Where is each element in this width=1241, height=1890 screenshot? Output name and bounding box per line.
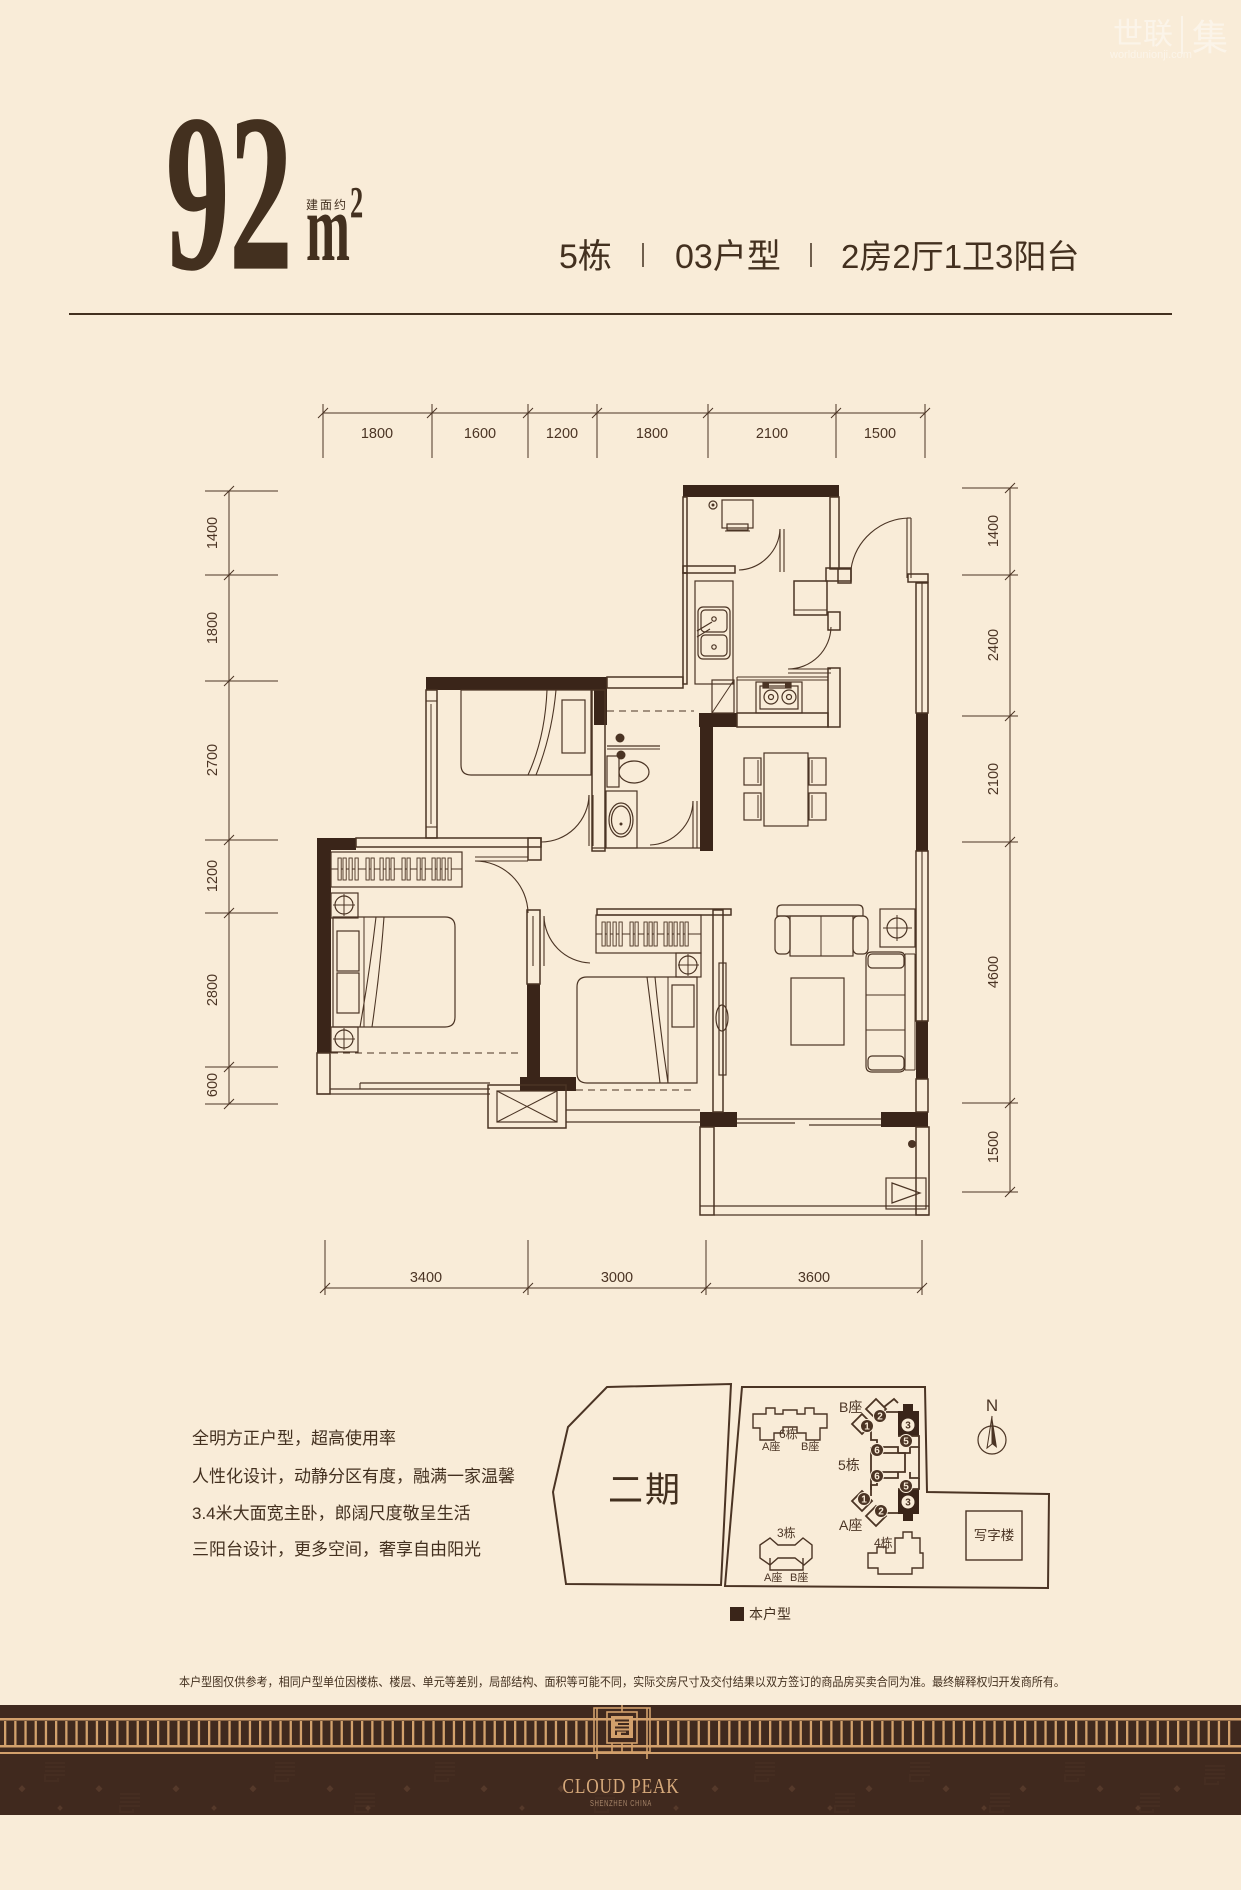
svg-text:集: 集 bbox=[1192, 17, 1228, 58]
svg-text:SHENZHEN CHINA: SHENZHEN CHINA bbox=[590, 1799, 652, 1808]
svg-text:3: 3 bbox=[905, 1421, 911, 1432]
svg-text:人性化设计，动静分区有度，融满一家温馨: 人性化设计，动静分区有度，融满一家温馨 bbox=[192, 1467, 515, 1486]
svg-text:worldunionji.com: worldunionji.com bbox=[1109, 49, 1192, 61]
svg-text:2100: 2100 bbox=[986, 763, 1002, 795]
svg-text:2: 2 bbox=[878, 1507, 884, 1518]
svg-text:03户型: 03户型 bbox=[675, 238, 781, 276]
svg-text:世联: 世联 bbox=[1113, 18, 1173, 51]
svg-text:5: 5 bbox=[903, 1482, 909, 1493]
svg-text:2400: 2400 bbox=[986, 629, 1002, 661]
svg-text:2: 2 bbox=[877, 1412, 883, 1423]
svg-text:3栋: 3栋 bbox=[777, 1525, 796, 1540]
svg-text:2800: 2800 bbox=[205, 974, 221, 1006]
svg-text:三阳台设计，更多空间，奢享自由阳光: 三阳台设计，更多空间，奢享自由阳光 bbox=[192, 1540, 481, 1559]
svg-text:92: 92 bbox=[166, 70, 293, 317]
svg-text:2: 2 bbox=[350, 178, 363, 227]
svg-text:1: 1 bbox=[864, 1422, 870, 1433]
svg-text:3600: 3600 bbox=[798, 1270, 830, 1286]
svg-text:600: 600 bbox=[205, 1073, 221, 1097]
svg-text:5栋: 5栋 bbox=[838, 1457, 860, 1473]
svg-text:6: 6 bbox=[874, 1472, 880, 1483]
svg-text:B座: B座 bbox=[801, 1439, 819, 1453]
svg-text:本户型: 本户型 bbox=[749, 1606, 791, 1622]
svg-text:5栋: 5栋 bbox=[559, 238, 612, 276]
svg-text:N: N bbox=[986, 1396, 998, 1415]
svg-text:4栋: 4栋 bbox=[874, 1535, 893, 1550]
svg-text:5: 5 bbox=[903, 1437, 909, 1448]
svg-text:1: 1 bbox=[861, 1495, 867, 1506]
svg-text:B座: B座 bbox=[839, 1399, 862, 1415]
svg-text:3.4米大面宽主卧，郎阔尺度敬呈生活: 3.4米大面宽主卧，郎阔尺度敬呈生活 bbox=[192, 1504, 471, 1523]
svg-text:4600: 4600 bbox=[986, 956, 1002, 988]
svg-text:1800: 1800 bbox=[636, 426, 668, 442]
svg-text:二期: 二期 bbox=[608, 1471, 682, 1510]
svg-text:1600: 1600 bbox=[464, 426, 496, 442]
svg-text:3: 3 bbox=[905, 1498, 911, 1509]
svg-text:本户型图仅供参考，相同户型单位因楼栋、楼层、单元等差别，局部: 本户型图仅供参考，相同户型单位因楼栋、楼层、单元等差别，局部结构、面积等可能不同… bbox=[179, 1674, 1065, 1689]
svg-text:1200: 1200 bbox=[546, 426, 578, 442]
svg-text:2100: 2100 bbox=[756, 426, 788, 442]
svg-text:A座: A座 bbox=[762, 1439, 780, 1453]
svg-text:1200: 1200 bbox=[205, 860, 221, 892]
svg-text:6栋: 6栋 bbox=[779, 1426, 798, 1441]
svg-text:写字楼: 写字楼 bbox=[974, 1528, 1015, 1543]
svg-text:2700: 2700 bbox=[205, 744, 221, 776]
svg-text:B座: B座 bbox=[790, 1570, 808, 1584]
svg-text:1800: 1800 bbox=[361, 426, 393, 442]
svg-text:6: 6 bbox=[874, 1446, 880, 1457]
svg-text:3000: 3000 bbox=[601, 1270, 633, 1286]
svg-text:2房2厅1卫3阳台: 2房2厅1卫3阳台 bbox=[841, 238, 1079, 275]
svg-text:1400: 1400 bbox=[986, 515, 1002, 547]
svg-text:1500: 1500 bbox=[864, 426, 896, 442]
svg-text:3400: 3400 bbox=[410, 1270, 442, 1286]
svg-text:A座: A座 bbox=[764, 1570, 782, 1584]
svg-text:1800: 1800 bbox=[205, 612, 221, 644]
svg-text:CLOUD PEAK: CLOUD PEAK bbox=[563, 1774, 680, 1798]
svg-text:A座: A座 bbox=[839, 1517, 862, 1533]
svg-text:1500: 1500 bbox=[986, 1131, 1002, 1163]
svg-text:全明方正户型，超高使用率: 全明方正户型，超高使用率 bbox=[192, 1428, 396, 1448]
svg-text:1400: 1400 bbox=[205, 517, 221, 549]
svg-text:m: m bbox=[306, 174, 350, 281]
